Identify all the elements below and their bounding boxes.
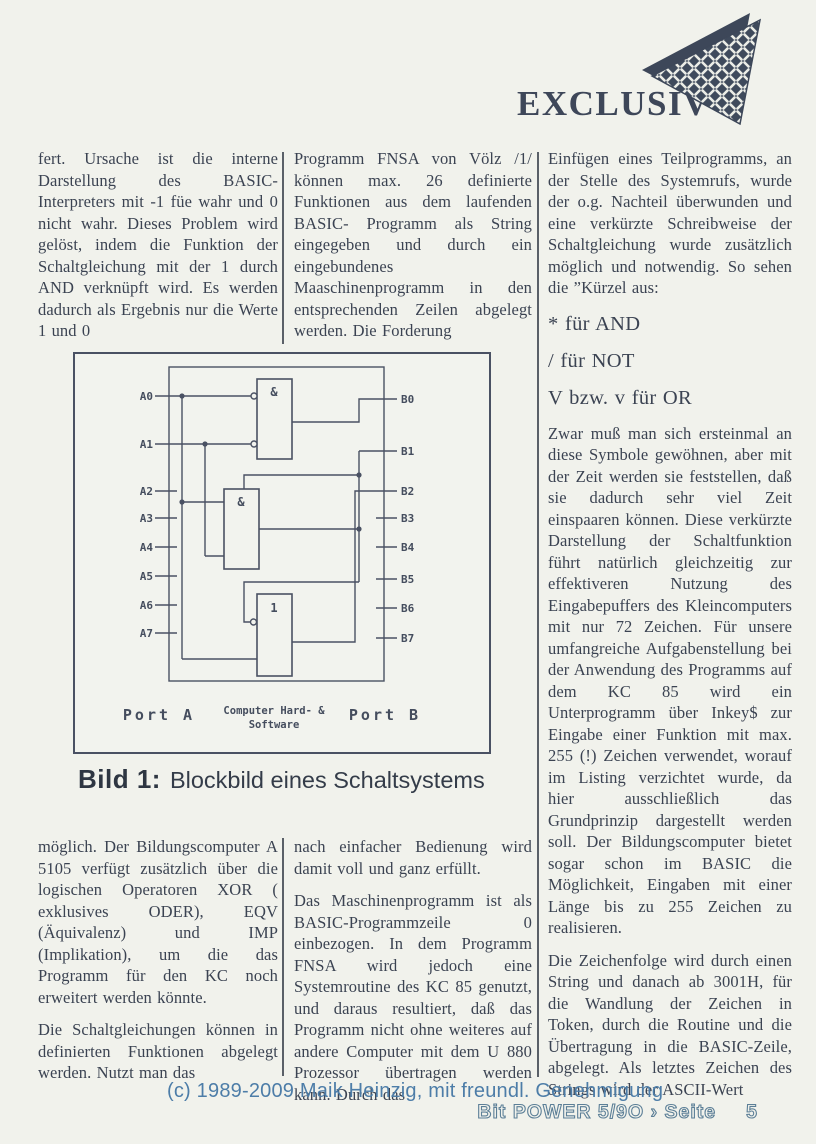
pin-a1: A1 (140, 438, 154, 451)
paragraph: Die Zeichenfolge wird durch einen String… (548, 950, 792, 1101)
page-number: 5 (746, 1101, 758, 1123)
pin-a3: A3 (140, 512, 153, 525)
pin-a0: A0 (140, 390, 153, 403)
paragraph: nach einfacher Bedienung wird damit voll… (294, 836, 532, 879)
center-label-line2: Software (249, 719, 300, 731)
pin-b1: B1 (401, 445, 415, 458)
article-column-1-top: fert. Ursache ist die interne Darstellun… (38, 148, 278, 353)
pin-b3: B3 (401, 512, 414, 525)
column-divider-1-lower (282, 838, 284, 1076)
figure-bild-1: & & 1 A0 A1 A2 A3 A4 A5 A6 A7 B0 B1 B2 B… (73, 352, 491, 754)
shortcut-or: V bzw. v für OR (548, 386, 792, 410)
article-column-2-top: Programm FNSA von Völz /1/ können max. 2… (294, 148, 532, 353)
figure-diagram: & & 1 A0 A1 A2 A3 A4 A5 A6 A7 B0 B1 B2 B… (75, 354, 489, 752)
article-column-3: Einfügen eines Teilprogramms, an der Ste… (548, 148, 792, 1111)
shortcut-and: * für AND (548, 312, 792, 336)
column-divider-2 (537, 152, 539, 1077)
figure-caption-text: Blockbild eines Schaltsystems (170, 767, 485, 793)
figure-caption: Bild 1:Blockbild eines Schaltsystems (78, 764, 485, 795)
figure-caption-label: Bild 1: (78, 764, 161, 794)
pin-b6: B6 (401, 602, 415, 615)
pin-b4: B4 (401, 541, 415, 554)
pin-a6: A6 (140, 599, 154, 612)
gate3-or-label: 1 (270, 601, 277, 615)
magazine-title: Bit POWER 5/9O › Seite (477, 1101, 716, 1123)
paragraph: Das Maschinenprogramm ist als BASIC-Prog… (294, 890, 532, 1105)
gate2-and-label: & (237, 495, 245, 509)
paragraph: fert. Ursache ist die interne Darstellun… (38, 148, 278, 342)
pin-b7: B7 (401, 632, 414, 645)
port-b-pin-labels: B0 B1 B2 B3 B4 B5 B6 B7 (401, 393, 415, 645)
port-a-label: Port A (123, 706, 195, 724)
center-label-line1: Computer Hard- & (223, 705, 325, 717)
magazine-page: EXCLUSIV fert. Ursache ist die interne D… (0, 0, 816, 1144)
paragraph: Einfügen eines Teilprogramms, an der Ste… (548, 148, 792, 299)
pin-b2: B2 (401, 485, 414, 498)
shortcut-not: / für NOT (548, 349, 792, 373)
pin-a4: A4 (140, 541, 154, 554)
pin-a5: A5 (140, 570, 153, 583)
paragraph: möglich. Der Bildungscomputer A 5105 ver… (38, 836, 278, 1008)
pin-b0: B0 (401, 393, 414, 406)
article-column-1-bottom: möglich. Der Bildungscomputer A 5105 ver… (38, 836, 278, 1095)
paragraph: Zwar muß man sich ersteinmal an diese Sy… (548, 423, 792, 939)
column-divider-1-upper (282, 152, 284, 344)
magazine-footer: Bit POWER 5/9O › Seite5 (477, 1101, 758, 1124)
pin-b5: B5 (401, 573, 414, 586)
pin-a2: A2 (140, 485, 153, 498)
article-column-2-bottom: nach einfacher Bedienung wird damit voll… (294, 836, 532, 1116)
woven-triangle-icon (638, 12, 778, 126)
gate1-and-label: & (270, 385, 278, 399)
paragraph: Programm FNSA von Völz /1/ können max. 2… (294, 148, 532, 342)
pin-a7: A7 (140, 627, 153, 640)
copyright-watermark: (c) 1989-2009 Maik Heinzig, mit freundl.… (167, 1080, 663, 1103)
port-a-pin-labels: A0 A1 A2 A3 A4 A5 A6 A7 (140, 390, 154, 640)
paragraph: Die Schaltgleichungen können in definier… (38, 1019, 278, 1084)
port-b-label: Port B (349, 706, 421, 724)
